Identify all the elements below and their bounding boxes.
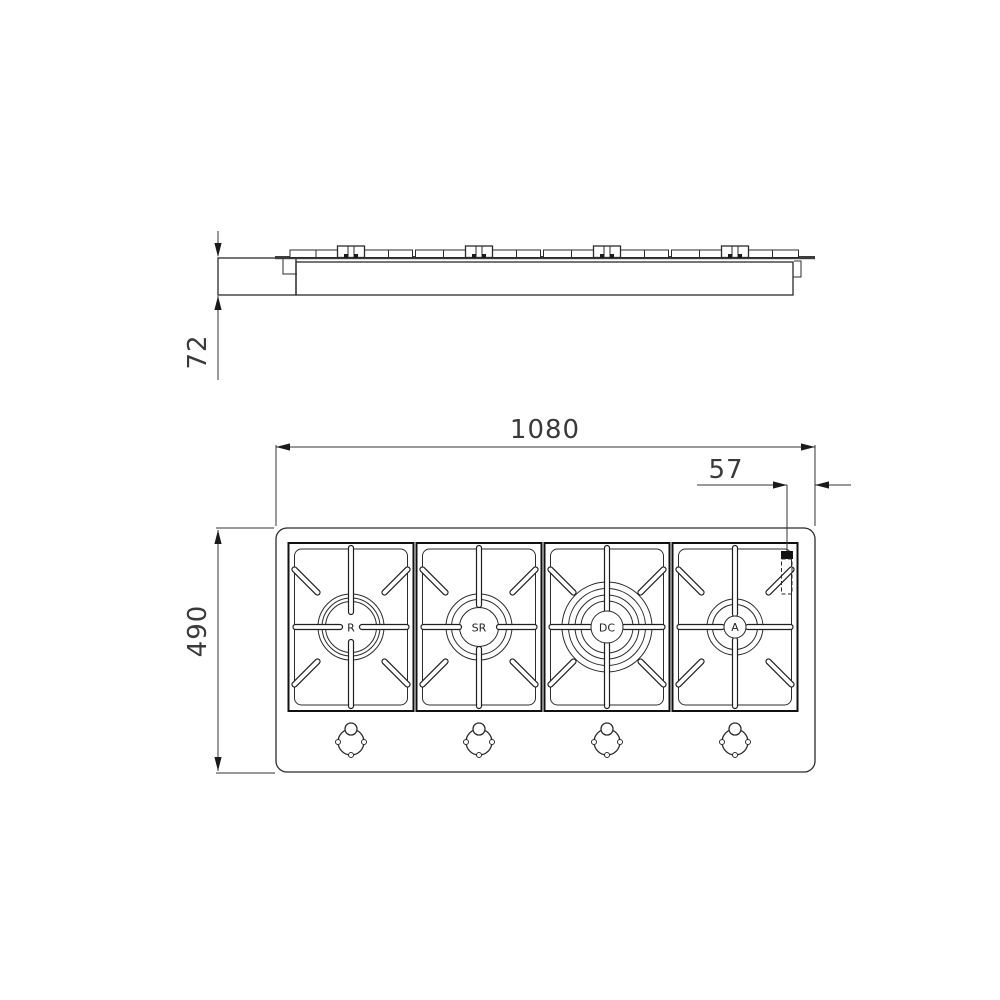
control-knob-4 xyxy=(720,723,751,758)
grid-section-dual-crown: DC xyxy=(545,543,670,711)
dimension-label-490: 490 xyxy=(183,605,213,658)
plan-view: R SR xyxy=(183,415,851,773)
burner-label-semi-rapid: SR xyxy=(472,622,487,635)
control-knobs xyxy=(336,723,751,758)
burner-cap-side-2 xyxy=(466,246,493,258)
burner-cap-side-1 xyxy=(338,246,365,258)
grid-section-auxiliary: A xyxy=(673,543,798,711)
burner-label-auxiliary: A xyxy=(731,621,739,634)
grid-section-rapid: R xyxy=(289,543,414,711)
control-knob-2 xyxy=(464,723,495,758)
burner-label-dual-crown: DC xyxy=(599,622,615,635)
grid-section-semi-rapid: SR xyxy=(417,543,542,711)
dimension-label-72: 72 xyxy=(183,334,213,369)
control-knob-3 xyxy=(592,723,623,758)
side-view: 72 xyxy=(183,231,815,380)
inlet-square xyxy=(781,551,793,559)
dimension-72: 72 xyxy=(183,231,222,380)
arrowhead-down xyxy=(214,243,221,257)
left-clamp xyxy=(283,259,297,274)
control-knob-1 xyxy=(336,723,367,758)
arrowhead-right xyxy=(801,443,815,450)
right-clamp xyxy=(793,261,801,277)
burner-cap-side-4 xyxy=(722,246,749,258)
dimension-label-57: 57 xyxy=(708,455,743,485)
arrowhead-down xyxy=(214,757,221,771)
arrowhead-left xyxy=(276,443,290,450)
arrowhead-up xyxy=(214,530,221,544)
dimension-490: 490 xyxy=(183,528,275,773)
arrowhead-up xyxy=(214,296,221,310)
dimension-label-1080: 1080 xyxy=(510,415,580,445)
arrowhead-left xyxy=(815,481,829,488)
dimension-57: 57 xyxy=(697,455,851,551)
hob-body-side xyxy=(296,262,793,295)
worktop-cross-section xyxy=(218,258,296,295)
burner-cap-side-3 xyxy=(594,246,621,258)
hob-technical-drawing: 72 R xyxy=(0,0,1000,1000)
technical-drawing-page: 72 R xyxy=(0,0,1000,1000)
burner-label-rapid: R xyxy=(347,622,355,635)
arrowhead-right xyxy=(773,481,787,488)
